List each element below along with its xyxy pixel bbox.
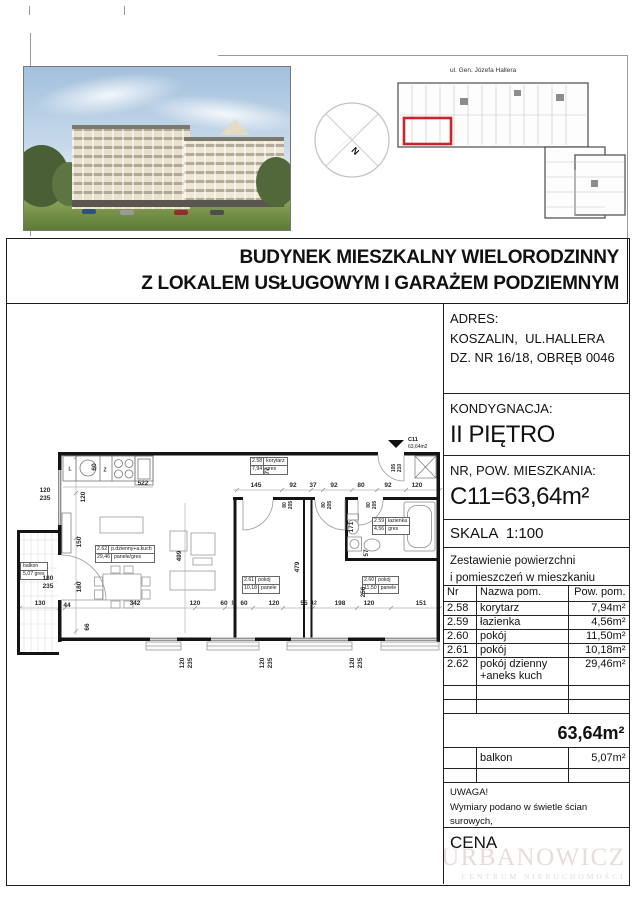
frame-line-top <box>218 55 628 56</box>
car <box>210 210 224 215</box>
stove-burner-icon <box>125 460 133 468</box>
room-label-lazienka: 2.59łazienka 4,56gres <box>372 517 410 535</box>
dim: 171 <box>349 522 356 533</box>
dim-window-bottom: 120235 <box>179 658 195 669</box>
dim: 80 <box>357 483 364 490</box>
rooms-table: Nr Nazwa pom. Pow. pom. 2.58 korytarz 7,… <box>444 586 629 783</box>
chair <box>142 577 150 586</box>
stove-burner-icon <box>115 470 123 478</box>
unit-value: C11=63,64m² <box>450 483 623 511</box>
dim: 66 <box>85 623 92 630</box>
floor-plan: C11 63,64m2 2.58korytarz 7,94gres 2.62p.… <box>8 435 444 687</box>
balcony <box>17 530 59 655</box>
reg-tick <box>29 6 30 15</box>
dim: 120 <box>269 601 280 608</box>
compass-rose <box>310 98 394 182</box>
notice-heading: UWAGA! <box>450 786 623 801</box>
building-gable <box>220 119 250 135</box>
dim: 12 <box>311 602 317 607</box>
scale-box: SKALA 1:100 <box>444 520 629 548</box>
radiator <box>62 513 71 553</box>
dim: 120 <box>81 492 88 503</box>
table-caption: Zestawienie powierzchni i pomieszczeń w … <box>444 548 629 586</box>
table-row: 2.60 pokój 11,50m² <box>444 629 629 643</box>
table-header: Nr Nazwa pom. Pow. pom. <box>444 586 629 601</box>
dim-window-left: 120235 <box>40 487 51 503</box>
dim: 151 <box>416 601 427 608</box>
table-row-empty <box>444 768 629 783</box>
tree <box>256 157 291 207</box>
table-row: 2.62 pokój dzienny +aneks kuch 29,46m² <box>444 657 629 685</box>
chair <box>95 590 103 599</box>
dim: 342 <box>130 601 141 608</box>
dim-inner-door: 80205 <box>366 501 378 509</box>
room-label-pokoj-61: 2.61pokój 10,18panele <box>242 576 280 594</box>
dim-window-bottom: 120235 <box>349 658 365 669</box>
dining-table <box>103 574 141 600</box>
dim: 60 <box>220 601 227 608</box>
fridge-letter: L <box>68 468 71 473</box>
dim: 12 <box>231 602 237 607</box>
dim: 57 <box>364 549 371 556</box>
dim: 130 <box>35 601 46 608</box>
balkon-row: balkon 5,07m² <box>444 747 629 768</box>
unit-box: NR, POW. MIESZKANIA: C11=63,64m² <box>444 456 629 520</box>
window-sills <box>146 642 439 650</box>
chair <box>95 577 103 586</box>
dim: 60 <box>92 463 99 470</box>
unit-heading: NR, POW. MIESZKANIA: <box>450 461 623 481</box>
dim: 77 <box>265 467 272 474</box>
agency-logo-subtitle: CENTRUM NIERUCHOMOŚCI <box>444 872 626 881</box>
sofa <box>191 533 215 555</box>
stove-burner-icon <box>125 470 133 478</box>
floor-heading: KONDYGNACJA: <box>450 399 623 419</box>
dim: 60 <box>240 601 247 608</box>
unit-marker-code: C11 <box>408 437 418 444</box>
chair <box>124 566 133 573</box>
building-outline <box>398 83 625 218</box>
car <box>82 209 96 214</box>
plan-sheet: N ul. Gen. Józefa Hallera BUDYNEK MIE <box>0 0 636 900</box>
dim: 120 <box>412 483 423 490</box>
sofa <box>170 571 215 590</box>
unit-marker-area: 63,64m2 <box>408 444 427 450</box>
dim: 479 <box>295 562 302 573</box>
balcony-tiles <box>20 533 58 652</box>
dim: 44 <box>63 603 70 610</box>
room-label-dzienny: 2.62p.dzienny+a.kuch 29,46panele/gres <box>95 545 155 563</box>
dim: 145 <box>251 483 262 490</box>
reg-tick <box>124 6 125 15</box>
car <box>120 210 134 215</box>
dim: 522 <box>138 481 149 488</box>
dim-inner-door: 80205 <box>321 501 333 509</box>
price-box: CENA URBANOWICZ CENTRUM NIERUCHOMOŚCI <box>444 828 629 884</box>
dim-balcony-door: 180235 <box>43 575 54 591</box>
chair <box>111 566 120 573</box>
address-line2: DZ. NR 16/18, OBRĘB 0046 <box>450 348 623 368</box>
table-row-empty <box>444 699 629 713</box>
chair <box>142 590 150 599</box>
car <box>174 210 188 215</box>
dim-window-bottom: 120235 <box>259 658 275 669</box>
address-heading: ADRES: <box>450 309 623 329</box>
building-left-wing <box>72 125 190 209</box>
notice-box: UWAGA! Wymiary podano w świetle ścian su… <box>444 783 629 828</box>
dim: 150 <box>77 537 84 548</box>
dim: 256 <box>361 587 368 598</box>
dim: 198 <box>335 601 346 608</box>
table-row: 2.58 korytarz 7,94m² <box>444 601 629 615</box>
dim: 92 <box>384 483 391 490</box>
address-box: ADRES: KOSZALIN, UL.HALLERA DZ. NR 16/18… <box>444 304 629 394</box>
dim-inner-door: 80205 <box>282 501 294 509</box>
floor-value: II PIĘTRO <box>450 421 623 449</box>
coffee-table <box>193 558 212 565</box>
entry-closet <box>415 456 436 478</box>
dim: 180 <box>77 582 84 593</box>
room-label-pokoj-60: 2.60pokój 11,50panele <box>362 576 399 594</box>
total-area: 63,64m² <box>444 713 629 747</box>
info-column: ADRES: KOSZALIN, UL.HALLERA DZ. NR 16/18… <box>443 304 629 884</box>
building-photo <box>23 66 291 231</box>
dim: 37 <box>309 483 316 490</box>
entry-marker-icon <box>388 440 404 448</box>
garage-base <box>72 200 284 207</box>
scale-value: SKALA 1:100 <box>450 525 623 542</box>
toilet-tank <box>348 514 359 520</box>
address-line1: KOSZALIN, UL.HALLERA <box>450 329 623 349</box>
table-row: 2.59 łazienka 4,56m² <box>444 615 629 629</box>
dim: 499 <box>177 551 184 562</box>
chair <box>111 601 120 608</box>
table-row-empty <box>444 685 629 699</box>
dim: 55 <box>300 601 307 608</box>
site-plan <box>386 60 632 238</box>
armchair <box>170 531 187 551</box>
kitchen-island <box>100 517 143 533</box>
dim: 92 <box>289 483 296 490</box>
dim: 120 <box>364 601 375 608</box>
dim: 92 <box>330 483 337 490</box>
stove-burner-icon <box>115 460 123 468</box>
dim-entry-door: 105210 <box>391 464 403 472</box>
floor-box: KONDYGNACJA: II PIĘTRO <box>444 394 629 456</box>
sink-letter: Z <box>103 469 106 474</box>
price-label: CENA <box>450 833 623 853</box>
table-row: 2.61 pokój 10,18m² <box>444 643 629 657</box>
floor-plan-drawing <box>8 435 444 687</box>
dim: 120 <box>190 601 201 608</box>
